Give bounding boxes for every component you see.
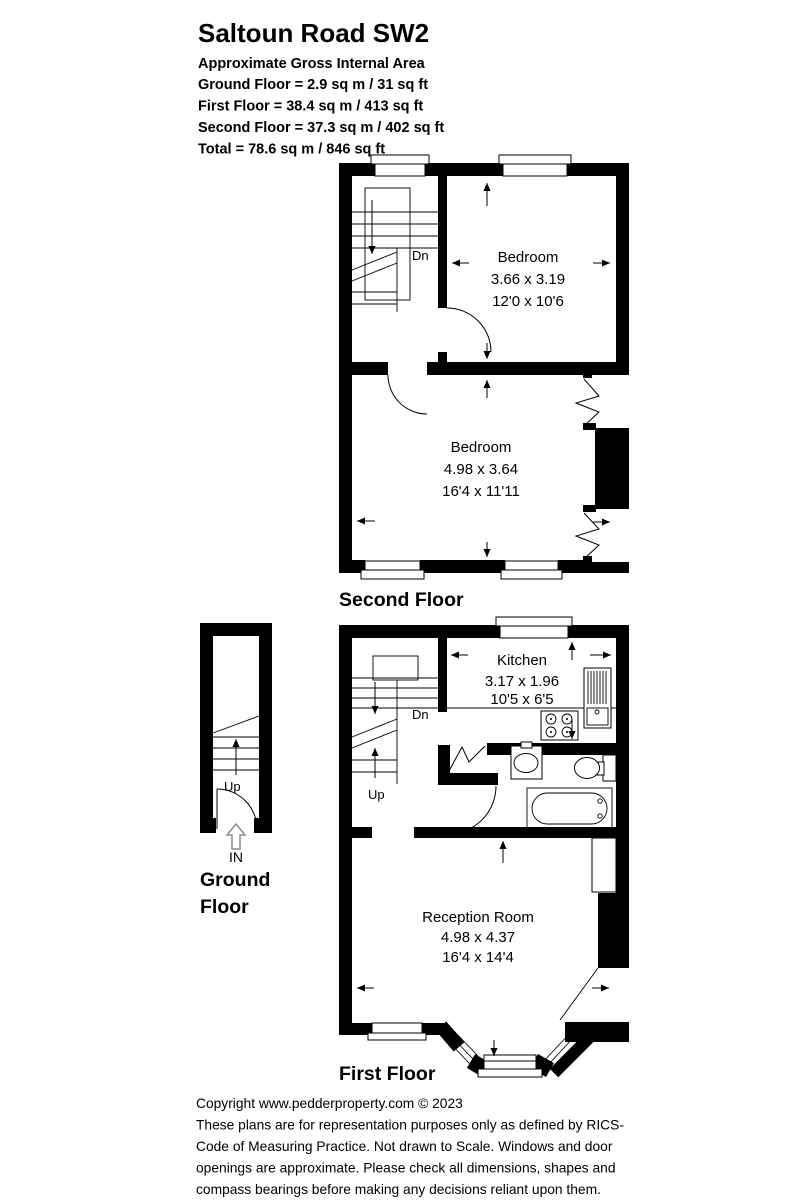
bifold-door xyxy=(449,746,485,771)
floorplan-drawing: Saltoun Road SW2 Approximate Gross Inter… xyxy=(0,0,801,1200)
room-dim-metric: 4.98 x 3.64 xyxy=(444,461,518,478)
window xyxy=(501,561,562,579)
footer-line: openings are approximate. Please check a… xyxy=(196,1161,616,1176)
footer-disclaimer: Copyright www.pedderproperty.com © 2023 … xyxy=(196,1096,624,1197)
ground-floor-plan: Up IN Ground Floor xyxy=(200,623,272,918)
dimension-arrows xyxy=(357,642,611,1056)
first-floor-plan: Dn Up xyxy=(339,617,629,1085)
first-floor-label: First Floor xyxy=(339,1063,436,1085)
window xyxy=(499,155,571,176)
door-arc xyxy=(217,789,257,829)
staircase: Dn Up xyxy=(352,656,438,802)
room-dim-imperial: 16'4 x 14'4 xyxy=(442,949,514,966)
entrance-in-arrow-icon xyxy=(227,824,245,849)
footer-line: Code of Measuring Practice. Not drawn to… xyxy=(196,1139,613,1154)
window xyxy=(371,155,429,176)
bathtub xyxy=(527,788,612,829)
reception-room-label: Reception Room 4.98 x 4.37 16'4 x 14'4 xyxy=(422,909,534,966)
area-line-total: Total = 78.6 sq m / 846 sq ft xyxy=(198,142,385,158)
stair-label-dn: Dn xyxy=(412,707,429,722)
window xyxy=(368,1023,426,1040)
kitchen-sink-unit xyxy=(584,668,611,728)
area-line-second: Second Floor = 37.3 sq m / 402 sq ft xyxy=(198,120,444,136)
bedroom-label: Bedroom 3.66 x 3.19 12'0 x 10'6 xyxy=(491,249,565,310)
room-name: Bedroom xyxy=(498,249,559,266)
door-arc xyxy=(447,308,491,352)
room-name: Bedroom xyxy=(451,439,512,456)
alcove-recess xyxy=(592,838,616,892)
room-dim-metric: 4.98 x 4.37 xyxy=(441,929,515,946)
floorplan-page: Saltoun Road SW2 Approximate Gross Inter… xyxy=(0,0,801,1200)
footer-line: These plans are for representation purpo… xyxy=(196,1118,624,1133)
door-arc xyxy=(448,786,496,834)
page-title: Saltoun Road SW2 xyxy=(198,18,429,48)
area-line-ground: Ground Floor = 2.9 sq m / 31 sq ft xyxy=(198,77,428,93)
window xyxy=(496,617,572,638)
header: Saltoun Road SW2 Approximate Gross Inter… xyxy=(198,18,444,158)
footer-line: Copyright www.pedderproperty.com © 2023 xyxy=(196,1096,463,1111)
window xyxy=(361,561,424,579)
entrance-in-label: IN xyxy=(229,849,243,865)
entrance-door xyxy=(217,789,257,829)
stair-label-up: Up xyxy=(368,787,385,802)
room-name: Kitchen xyxy=(497,652,547,669)
area-line-first: First Floor = 38.4 sq m / 413 sq ft xyxy=(198,99,423,115)
room-dim-imperial: 16'4 x 11'11 xyxy=(442,483,520,500)
ground-floor-walls xyxy=(200,623,272,833)
second-floor-plan: Dn Bedroom 3.66 x 3.19 12'0 x 10'6 Bedro… xyxy=(339,155,629,611)
room-name: Reception Room xyxy=(422,909,534,926)
kitchen-label: Kitchen 3.17 x 1.96 10'5 x 6'5 xyxy=(485,652,559,708)
room-dim-imperial: 12'0 x 10'6 xyxy=(492,293,564,310)
stair-label-dn: Dn xyxy=(412,248,429,263)
room-dim-metric: 3.66 x 3.19 xyxy=(491,271,565,288)
washbasin xyxy=(511,742,542,779)
area-subtitle: Approximate Gross Internal Area xyxy=(198,56,426,72)
ground-floor-label-line2: Floor xyxy=(200,896,249,918)
room-dim-metric: 3.17 x 1.96 xyxy=(485,673,559,690)
bay-window xyxy=(441,968,629,1077)
window xyxy=(478,1055,542,1077)
toilet xyxy=(575,755,617,781)
room-dim-imperial: 10'5 x 6'5 xyxy=(490,691,553,708)
staircase: Dn xyxy=(352,188,438,312)
footer-line: compass bearings before making any decis… xyxy=(196,1182,601,1197)
staircase: Up xyxy=(213,716,259,794)
second-floor-label: Second Floor xyxy=(339,589,464,611)
bedroom-label: Bedroom 4.98 x 3.64 16'4 x 11'11 xyxy=(442,439,520,500)
door-arc xyxy=(388,375,427,414)
ground-floor-label-line1: Ground xyxy=(200,869,270,891)
